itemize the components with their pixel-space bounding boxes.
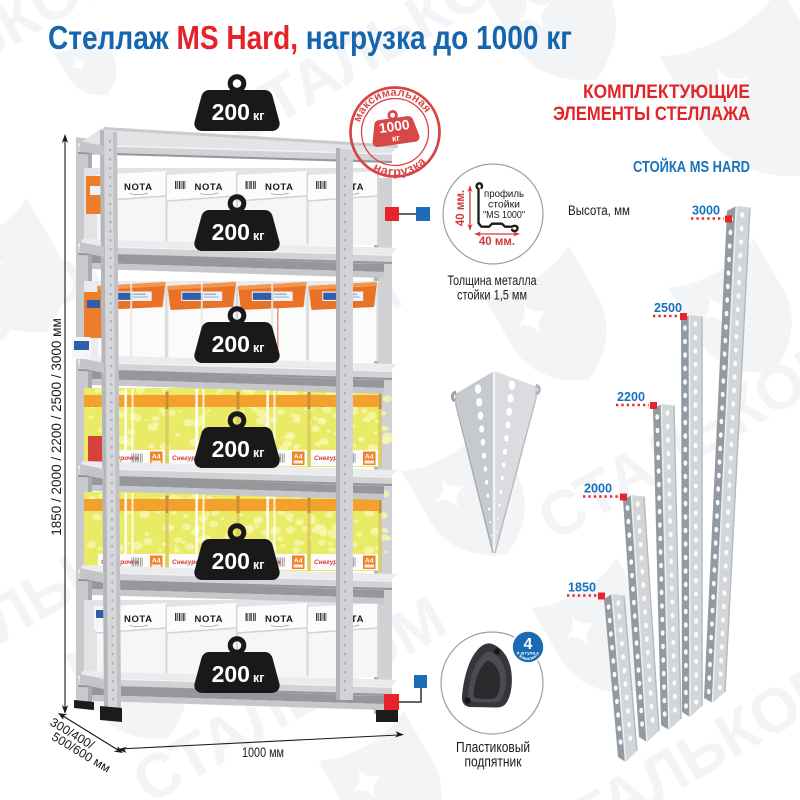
svg-text:ЭЛЕМЕНТЫ СТЕЛЛАЖА: ЭЛЕМЕНТЫ СТЕЛЛАЖА (553, 103, 750, 125)
svg-text:1850: 1850 (568, 581, 596, 595)
svg-text:A4: A4 (152, 558, 161, 565)
svg-text:A4: A4 (294, 558, 303, 565)
svg-text:1850 / 2000 / 2200 / 2500 / 30: 1850 / 2000 / 2200 / 2500 / 3000 мм (49, 318, 64, 535)
svg-text:Толщина металла: Толщина металла (448, 273, 537, 288)
svg-text:1000 мм: 1000 мм (242, 745, 284, 760)
svg-text:стойки 1,5 мм: стойки 1,5 мм (457, 288, 527, 303)
svg-text:Стеллаж MS Hard, нагрузка до 1: Стеллаж MS Hard, нагрузка до 1000 кг (48, 19, 572, 56)
svg-text:NOTA: NOTA (124, 614, 153, 625)
svg-text:NOTA: NOTA (124, 182, 153, 193)
svg-text:"MS 1000": "MS 1000" (483, 210, 525, 221)
svg-text:2200: 2200 (617, 390, 645, 404)
svg-text:стойки: стойки (488, 200, 520, 211)
svg-text:КОМПЛЕКТУЮЩИЕ: КОМПЛЕКТУЮЩИЕ (583, 81, 750, 103)
svg-text:NOTA: NOTA (265, 182, 294, 193)
svg-text:профиль: профиль (484, 188, 524, 200)
svg-text:NOTA: NOTA (265, 614, 294, 625)
svg-text:СТОЙКА MS HARD: СТОЙКА MS HARD (633, 157, 750, 176)
svg-text:A4: A4 (152, 454, 161, 461)
svg-text:подпятник: подпятник (465, 755, 523, 771)
svg-text:40 мм.: 40 мм. (479, 236, 515, 248)
svg-text:3000: 3000 (692, 204, 720, 218)
svg-text:Высота, мм: Высота, мм (568, 203, 630, 218)
svg-text:A4: A4 (365, 558, 374, 565)
svg-text:2500: 2500 (654, 301, 682, 315)
svg-text:NOTA: NOTA (194, 614, 223, 625)
svg-text:NOTA: NOTA (194, 182, 223, 193)
svg-text:A4: A4 (294, 454, 303, 461)
svg-text:A4: A4 (365, 454, 374, 461)
svg-text:40 мм.: 40 мм. (455, 190, 467, 226)
svg-text:2000: 2000 (584, 482, 612, 496)
